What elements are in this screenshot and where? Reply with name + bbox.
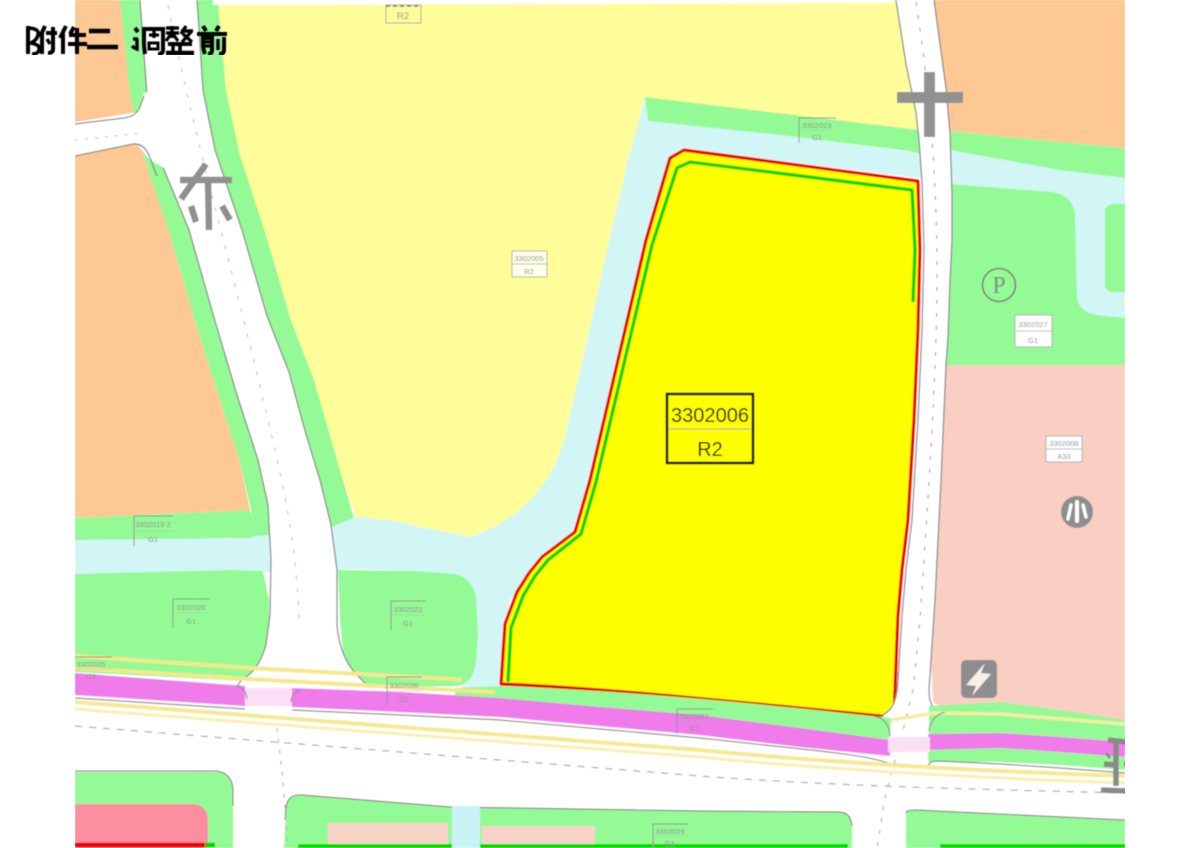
svg-text:3302005: 3302005 — [514, 254, 543, 263]
svg-text:3302035: 3302035 — [76, 660, 105, 669]
svg-text:G2: G2 — [86, 672, 96, 681]
svg-text:P: P — [992, 273, 1005, 299]
svg-text:G1: G1 — [403, 619, 413, 628]
svg-text:3303029: 3303029 — [655, 827, 684, 836]
svg-text:G1: G1 — [812, 133, 822, 142]
svg-text:3302008: 3302008 — [1049, 439, 1078, 448]
svg-text:3302027: 3302027 — [1018, 320, 1047, 329]
svg-text:3302036: 3302036 — [389, 681, 418, 690]
svg-text:3302022: 3302022 — [393, 605, 422, 614]
svg-text:R2: R2 — [524, 267, 534, 276]
svg-text:G1: G1 — [665, 839, 675, 848]
svg-text:G1: G1 — [1028, 336, 1038, 345]
svg-text:G1: G1 — [148, 535, 158, 544]
svg-text:G2: G2 — [399, 695, 409, 704]
svg-text:3302020: 3302020 — [176, 603, 205, 612]
svg-text:R2: R2 — [697, 439, 723, 461]
svg-text:A33: A33 — [1057, 452, 1070, 461]
svg-text:G2: G2 — [689, 724, 699, 733]
svg-text:G1: G1 — [186, 617, 196, 626]
svg-text:3302023: 3302023 — [802, 121, 831, 130]
svg-text:3302037: 3302037 — [679, 712, 708, 721]
svg-text:R2: R2 — [397, 11, 409, 22]
svg-text:3302019 2: 3302019 2 — [135, 520, 170, 529]
svg-text:3302006: 3302006 — [671, 405, 749, 427]
